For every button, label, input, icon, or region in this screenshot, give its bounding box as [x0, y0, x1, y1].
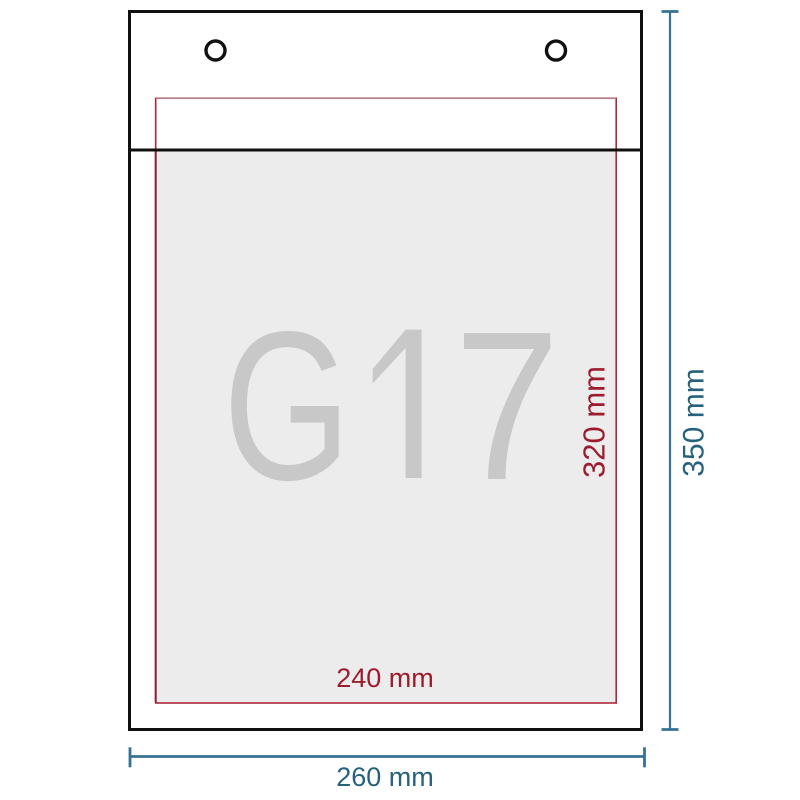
svg-text:260 mm: 260 mm [336, 762, 434, 792]
svg-text:7: 7 [454, 287, 560, 524]
svg-text:G: G [223, 288, 351, 525]
svg-text:350 mm: 350 mm [678, 368, 711, 476]
svg-text:240 mm: 240 mm [336, 663, 434, 693]
svg-text:320 mm: 320 mm [577, 366, 612, 478]
